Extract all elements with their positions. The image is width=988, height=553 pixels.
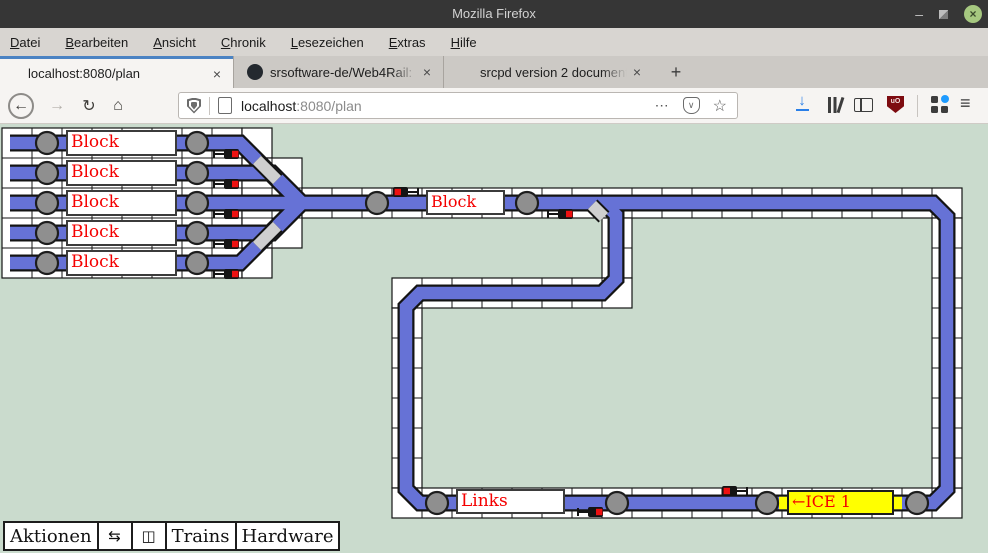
downloads-icon[interactable]: ↓ [793,94,811,111]
block-label-links[interactable]: Links [456,489,565,514]
page-info-icon[interactable] [218,97,232,114]
github-icon [247,64,263,80]
sidebar-icon[interactable] [854,98,873,112]
close-button[interactable]: × [964,5,982,23]
bookmark-star-icon[interactable]: ☆ [713,96,727,116]
menu-hilfe[interactable]: Hilfe [451,35,477,50]
split-view-icon-button[interactable]: ◫ [131,521,167,551]
plan-toolbar: Aktionen ⇆ ◫ Trains Hardware [3,521,340,551]
aktionen-button[interactable]: Aktionen [3,521,99,551]
tab-close-icon[interactable]: × [627,64,653,80]
block-label[interactable]: Block [426,190,505,215]
menu-bearbeiten[interactable]: Bearbeiten [65,35,128,50]
train-label-ice1[interactable]: ←ICE 1 [787,490,894,515]
swap-arrows-icon-button[interactable]: ⇆ [97,521,133,551]
forward-button: → [44,93,70,119]
menu-chronik[interactable]: Chronik [221,35,266,50]
reload-button[interactable]: ↻ [76,93,102,119]
menu-datei[interactable]: Datei [10,35,40,50]
window-title: Mozilla Firefox [0,6,988,21]
library-icon[interactable] [826,97,846,113]
tab-github[interactable]: srsoftware-de/Web4Rail: B × [233,56,443,88]
block-label[interactable]: Block [66,250,177,276]
tab-title: srsoftware-de/Web4Rail: B [270,65,417,80]
trains-button[interactable]: Trains [165,521,237,551]
new-tab-button[interactable]: + [661,56,691,88]
back-button[interactable]: ← [8,93,34,119]
extensions-icon[interactable] [931,96,948,113]
hardware-button[interactable]: Hardware [235,521,341,551]
navbar: ← → ↻ ⌂ localhost:8080/plan ⋯ ∨ ☆ ↓ uO ≡ [0,88,988,124]
pocket-icon[interactable]: ∨ [683,97,700,114]
menubar: Datei Bearbeiten Ansicht Chronik Lesezei… [0,28,988,56]
block-label[interactable]: Block [66,220,177,246]
menu-lesezeichen[interactable]: Lesezeichen [291,35,364,50]
block-label[interactable]: Block [66,130,177,156]
tab-title: srcpd version 2 documenta [480,65,627,80]
block-label[interactable]: Block [66,160,177,186]
firefox-window: Mozilla Firefox – × Datei Bearbeiten Ans… [0,0,988,553]
url-text[interactable]: localhost:8080/plan [241,98,655,114]
ublock-icon[interactable]: uO [887,96,904,113]
menu-ansicht[interactable]: Ansicht [153,35,196,50]
page-actions-icon[interactable]: ⋯ [655,97,670,114]
tabbar: localhost:8080/plan × srsoftware-de/Web4… [0,56,988,88]
track-plan: Block Block Block Block Block Block Link… [0,124,988,553]
restore-button[interactable] [939,10,948,19]
tracking-protection-icon[interactable] [187,98,201,114]
minimize-button[interactable]: – [915,9,923,19]
tab-srcpd[interactable]: srcpd version 2 documenta × [443,56,653,88]
notification-dot [941,95,949,103]
tab-close-icon[interactable]: × [417,64,443,80]
tab-title: localhost:8080/plan [28,66,207,81]
url-bar[interactable]: localhost:8080/plan ⋯ ∨ ☆ [178,92,738,119]
titlebar: Mozilla Firefox – × [0,0,988,28]
tab-plan[interactable]: localhost:8080/plan × [0,56,233,88]
hamburger-menu-icon[interactable]: ≡ [960,93,971,114]
home-button[interactable]: ⌂ [105,93,131,119]
block-label[interactable]: Block [66,190,177,216]
menu-extras[interactable]: Extras [389,35,426,50]
tab-close-icon[interactable]: × [207,66,233,82]
